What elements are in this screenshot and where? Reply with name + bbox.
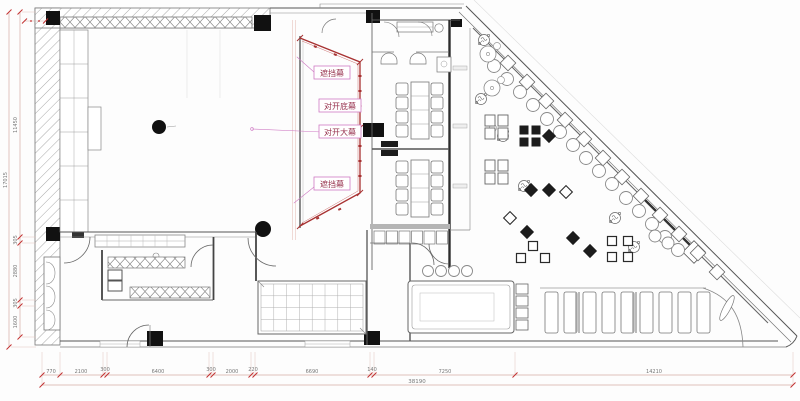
- square-table-groups: [485, 115, 508, 184]
- dining-terrace: [473, 28, 768, 323]
- curtain-label-lower: 遮挡幕: [314, 177, 350, 190]
- kitchen: [44, 235, 276, 347]
- leaf-decor: [717, 294, 736, 322]
- dim-left-1: 17015: [3, 172, 9, 188]
- stool-row: [488, 60, 685, 257]
- dim-left-3: 2880: [13, 265, 19, 278]
- dim-bottom-6: 220: [248, 367, 258, 373]
- corridor: [450, 66, 470, 230]
- dim-bottom-0: 770: [46, 369, 56, 375]
- curtain-label-split-main-text: 对开大幕: [324, 127, 356, 137]
- dim-left-4: 305: [13, 298, 19, 308]
- dim-bottom-5: 2000: [226, 369, 239, 375]
- curtain-label-top-text: 遮挡幕: [320, 68, 344, 78]
- dimensions-bottom: 770 2100 300 6400 300 2000 220 6690 140 …: [40, 352, 796, 388]
- hall-center-column: [152, 120, 166, 134]
- dim-bottom-10: 14210: [646, 369, 662, 375]
- curtain-label-callouts: 遮挡幕 对开底幕 对开大幕 遮挡幕: [251, 57, 361, 203]
- dim-bottom-total: 38190: [408, 379, 426, 385]
- curtain-label-split-main: 对开大幕: [319, 125, 361, 138]
- dim-bottom-9: 7250: [439, 369, 452, 375]
- dance-floor-grid: [256, 230, 367, 345]
- dim-bottom-8: 140: [367, 367, 377, 373]
- floor-plan-page: 遮挡幕 对开底幕 对开大幕 遮挡幕: [0, 0, 800, 401]
- dim-left-2: 305: [13, 235, 19, 245]
- dim-bottom-7: 6690: [306, 369, 319, 375]
- floor-plan-drawing: 遮挡幕 对开底幕 对开大幕 遮挡幕: [0, 0, 800, 401]
- curtain-label-split-bottom-text: 对开底幕: [324, 101, 356, 111]
- dim-left-5: 1600: [13, 316, 19, 329]
- dim-bottom-2: 300: [100, 367, 110, 373]
- booth-seating: [540, 288, 743, 347]
- dim-left-0: 11450: [13, 117, 19, 133]
- private-room-1: [372, 82, 449, 149]
- bar-stools: [423, 266, 473, 277]
- curtain-label-lower-text: 遮挡幕: [320, 179, 344, 189]
- dim-bottom-1: 2100: [75, 369, 88, 375]
- dim-bottom-4: 300: [206, 367, 216, 373]
- dim-bottom-3: 6400: [152, 369, 165, 375]
- curtain-label-top: 遮挡幕: [314, 66, 350, 79]
- table-clusters: [504, 126, 674, 263]
- stage-truss: [60, 17, 252, 28]
- curtain-label-split-bottom: 对开底幕: [319, 99, 361, 112]
